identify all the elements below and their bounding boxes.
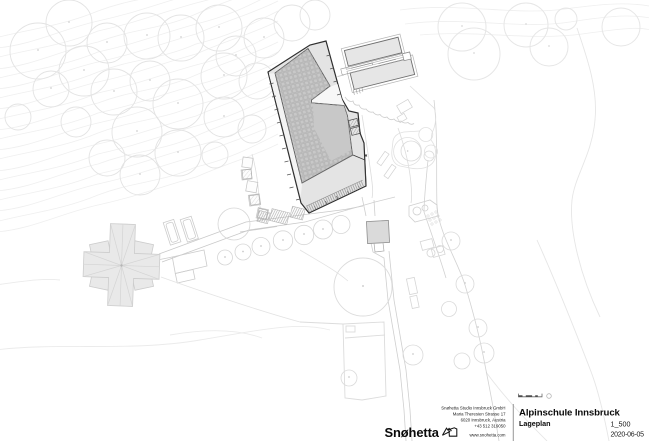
svg-text:Maria Theresien Strasse 17: Maria Theresien Strasse 17 — [453, 412, 506, 417]
svg-text:1_500: 1_500 — [611, 419, 631, 428]
svg-text:6020 Innsbruck, Austria: 6020 Innsbruck, Austria — [461, 418, 507, 423]
svg-text:Lageplan: Lageplan — [519, 419, 551, 428]
svg-text:+43 512 319050: +43 512 319050 — [474, 424, 506, 429]
svg-text:www.snohetta.com: www.snohetta.com — [469, 433, 505, 438]
svg-text:2020-06-05: 2020-06-05 — [611, 432, 645, 439]
svg-text:Snøhetta: Snøhetta — [385, 425, 440, 440]
svg-text:Alpinschule Innsbruck: Alpinschule Innsbruck — [519, 408, 621, 419]
svg-text:Snøhetta Studio Innsbruck GmbH: Snøhetta Studio Innsbruck GmbH — [441, 406, 505, 411]
